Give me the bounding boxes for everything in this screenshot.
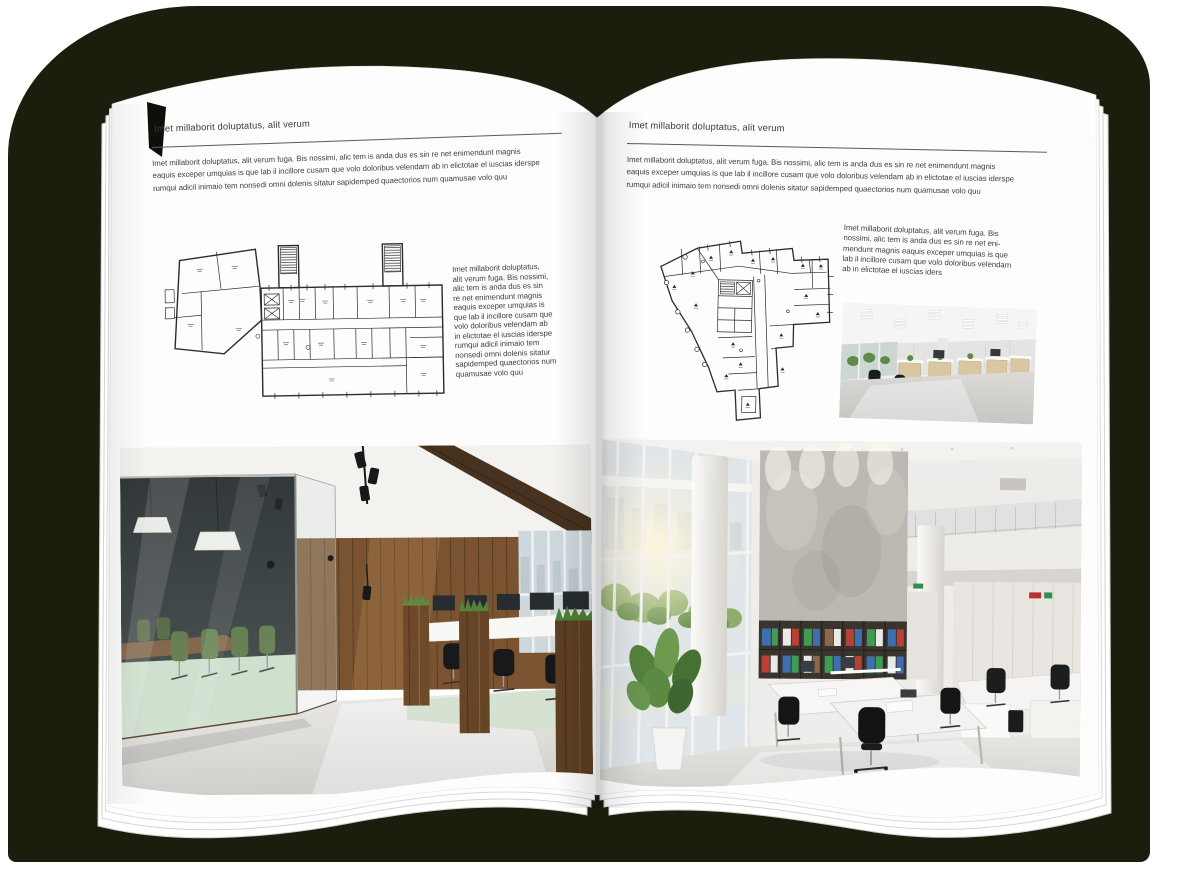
left-side-paragraph: Imet millaborit doluptatus, alit verum f… bbox=[452, 260, 606, 379]
plan-room-marks bbox=[187, 263, 428, 383]
right-side-paragraph: Imet millaborit doluptatus, alit verum f… bbox=[842, 223, 1049, 283]
left-floor-plan-image bbox=[156, 225, 451, 417]
right-floor-plan-image bbox=[637, 216, 839, 428]
right-small-office-photo bbox=[839, 303, 1037, 425]
concrete-wall bbox=[759, 440, 908, 621]
right-office-photo bbox=[600, 439, 1082, 794]
page-canvas: { "canvas": { "background_color": "#ffff… bbox=[0, 0, 1200, 891]
left-office-photo bbox=[120, 444, 593, 795]
glass-meeting-room bbox=[120, 474, 337, 739]
